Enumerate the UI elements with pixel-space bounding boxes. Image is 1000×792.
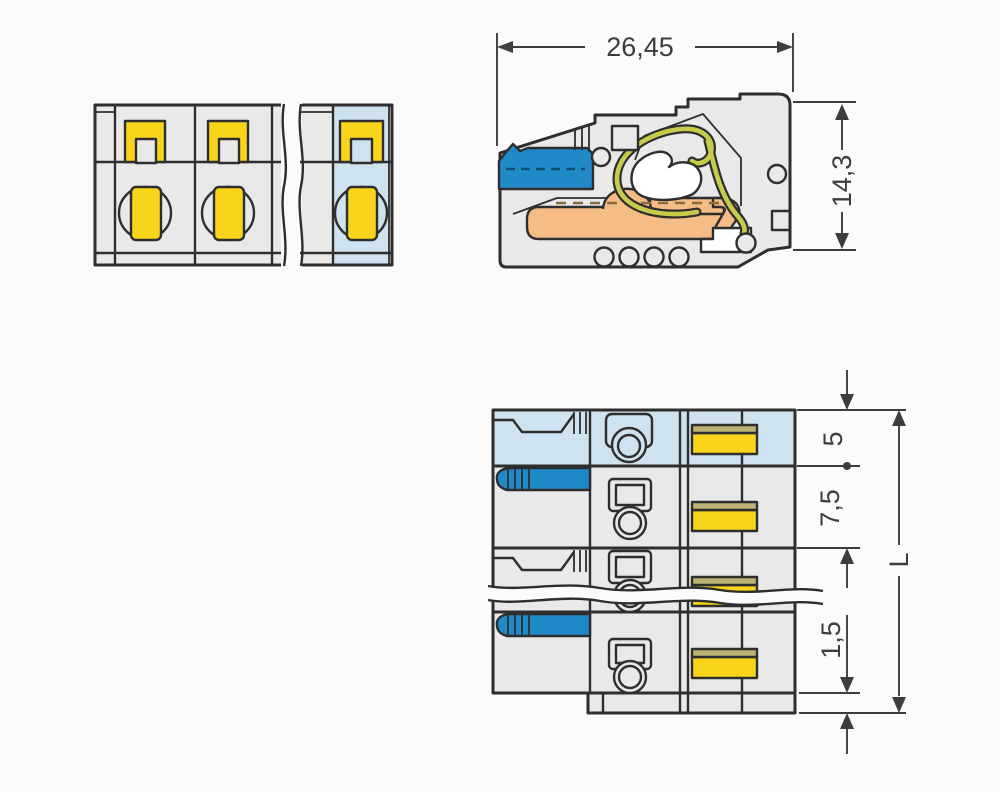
row4-port	[609, 639, 651, 693]
dimension-dot	[843, 462, 851, 470]
push-button-slot	[219, 139, 239, 163]
bottom-hole	[670, 248, 689, 267]
dim-label-pole-pitch: 7,5	[815, 489, 845, 527]
row2-lever	[497, 468, 590, 490]
round-hole	[592, 148, 610, 166]
arrowhead-right	[777, 41, 793, 53]
dim-label-total-length: L	[884, 552, 914, 567]
dim-label-bottom-offset: 1,5	[816, 621, 846, 659]
arrowhead-up	[840, 548, 854, 564]
square-hole	[612, 126, 638, 150]
dim-label-overall-width: 26,45	[606, 32, 674, 62]
side-section-view	[499, 94, 790, 267]
row4-lever	[497, 614, 590, 636]
dimension-bottom-offset: 1,5	[816, 615, 854, 754]
bottom-hole	[620, 248, 639, 267]
arrowhead-up	[892, 410, 906, 426]
dimension-overall-height: 14,3	[793, 102, 857, 250]
connector-technical-drawing: 26,45 14,3 5 7,5 1,5	[0, 0, 1000, 792]
row1-marker-button	[692, 425, 757, 454]
push-button-slot	[136, 139, 156, 163]
row2-port	[609, 479, 651, 539]
round-hole	[768, 165, 786, 183]
arrowhead-up	[840, 713, 854, 729]
arrowhead-down	[835, 233, 849, 249]
dimension-first-pitch: 5	[818, 370, 854, 470]
bottom-hole	[595, 248, 614, 267]
front-view	[95, 102, 392, 268]
row4-marker-button	[692, 649, 757, 678]
technical-drawing-page: 26,45 14,3 5 7,5 1,5	[0, 0, 1000, 792]
dimension-pole-pitch: 7,5	[815, 489, 854, 588]
arrowhead-down	[892, 697, 906, 713]
bottom-hole	[645, 248, 664, 267]
arrowhead-down	[840, 394, 854, 410]
operating-lever	[499, 144, 593, 189]
wire-port-insert	[131, 187, 161, 240]
dim-label-first-pitch: 5	[818, 431, 848, 446]
arrowhead-up	[835, 104, 849, 120]
dimension-total-length: L	[884, 410, 914, 713]
arrowhead-left	[497, 41, 513, 53]
round-hole	[737, 234, 756, 253]
wire-port-insert	[347, 187, 377, 240]
row2-marker-button	[692, 502, 757, 531]
front-housing-left-block	[95, 105, 283, 265]
dim-label-overall-height: 14,3	[827, 155, 857, 208]
push-button-slot	[351, 139, 372, 163]
wire-port-insert	[214, 187, 244, 240]
bottom-flange	[588, 693, 795, 713]
arrowhead-down	[840, 677, 854, 693]
bottom-view	[488, 410, 823, 713]
